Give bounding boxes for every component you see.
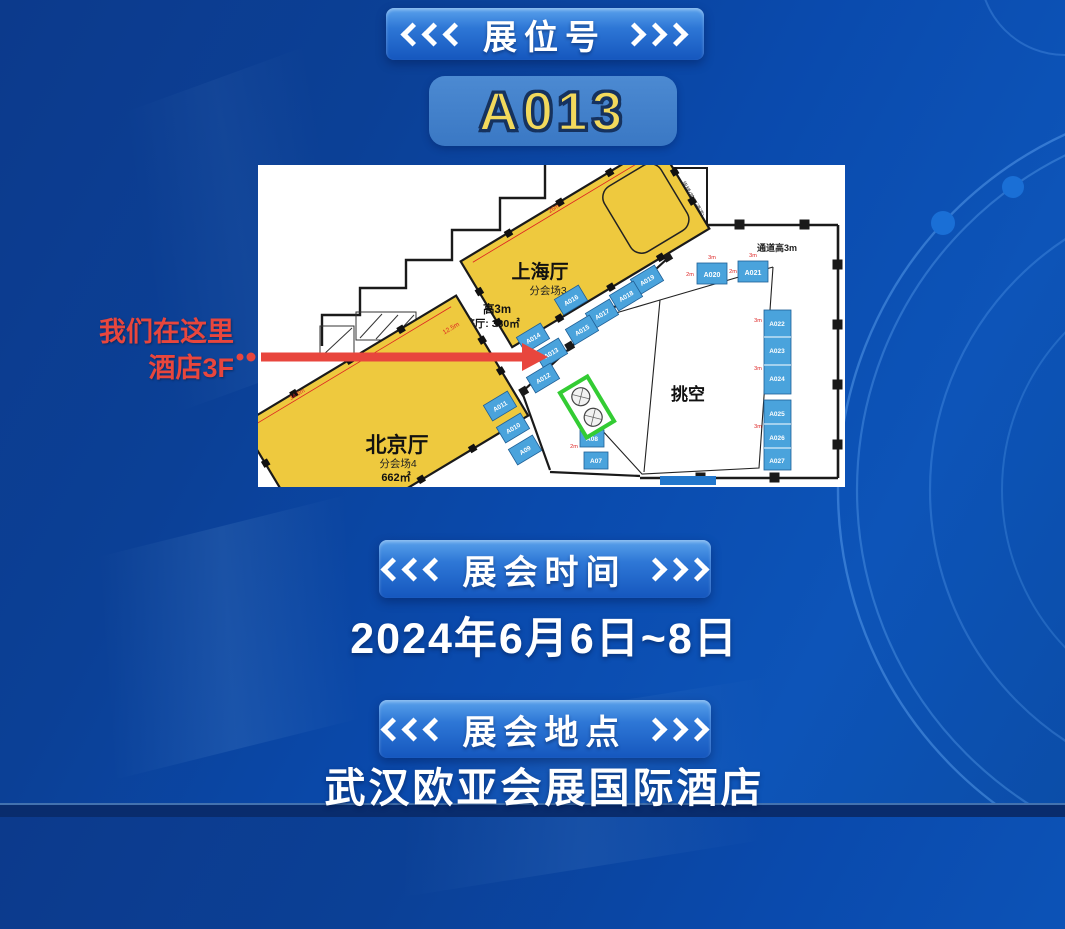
location-section-label: 展会地点	[463, 705, 627, 754]
chevron-left-icon	[384, 721, 443, 738]
floor-plan-map: 货梯(施工通道)	[230, 160, 850, 492]
chevron-right-icon	[647, 721, 706, 738]
svg-text:A07: A07	[590, 458, 602, 465]
svg-text:A021: A021	[745, 270, 762, 277]
svg-text:A026: A026	[769, 435, 785, 442]
svg-text:3m: 3m	[754, 424, 762, 430]
beijing-subtitle: 分会场4	[379, 457, 416, 470]
chevron-left-icon	[384, 561, 443, 578]
chevron-left-icon	[404, 26, 463, 43]
booth-number-badge: A013	[429, 76, 677, 146]
time-section-label: 展会时间	[463, 545, 627, 594]
svg-text:3m: 3m	[754, 366, 762, 372]
location-header-badge: 展会地点	[379, 700, 711, 758]
callout-line1: 我们在这里	[38, 314, 234, 350]
arc-dot	[1002, 176, 1024, 198]
svg-text:3m: 3m	[754, 318, 762, 324]
svg-text:2m: 2m	[686, 272, 694, 278]
shanghai-height-note: 高3m	[483, 302, 511, 316]
svg-text:A022: A022	[769, 321, 785, 328]
chevron-right-icon	[626, 26, 685, 43]
svg-text:A027: A027	[769, 458, 785, 465]
svg-text:A025: A025	[769, 411, 785, 418]
callout-line2: 酒店3F	[38, 350, 234, 386]
beijing-area: 662㎡	[381, 470, 410, 484]
atrium-label: 挑空	[671, 384, 705, 404]
svg-text:3m: 3m	[708, 255, 716, 261]
aisle-note: 通道高3m	[757, 242, 797, 253]
shanghai-name: 上海厅	[511, 260, 568, 283]
event-date: 2024年6月6日~8日	[350, 604, 739, 666]
svg-text:A024: A024	[769, 376, 785, 383]
svg-text:A023: A023	[769, 348, 785, 355]
booth-number-section-label: 展位号	[483, 10, 606, 59]
beijing-name: 北京厅	[366, 433, 429, 457]
svg-text:3m: 3m	[749, 253, 757, 259]
chevron-right-icon	[647, 561, 706, 578]
arc-dot	[931, 211, 955, 235]
svg-text:A020: A020	[704, 272, 721, 279]
booth-number-value: A013	[479, 79, 626, 143]
map-banner	[660, 476, 716, 485]
right-booths: A022 A023 A024 A025 A026 A027	[764, 310, 791, 470]
svg-text:2m: 2m	[570, 444, 578, 450]
event-location: 武汉欧亚会展国际酒店	[325, 754, 765, 814]
booth-number-header-badge: 展位号	[386, 8, 704, 60]
svg-text:2m: 2m	[729, 269, 737, 275]
time-header-badge: 展会时间	[379, 540, 711, 598]
location-callout: 我们在这里 酒店3F	[38, 314, 234, 386]
